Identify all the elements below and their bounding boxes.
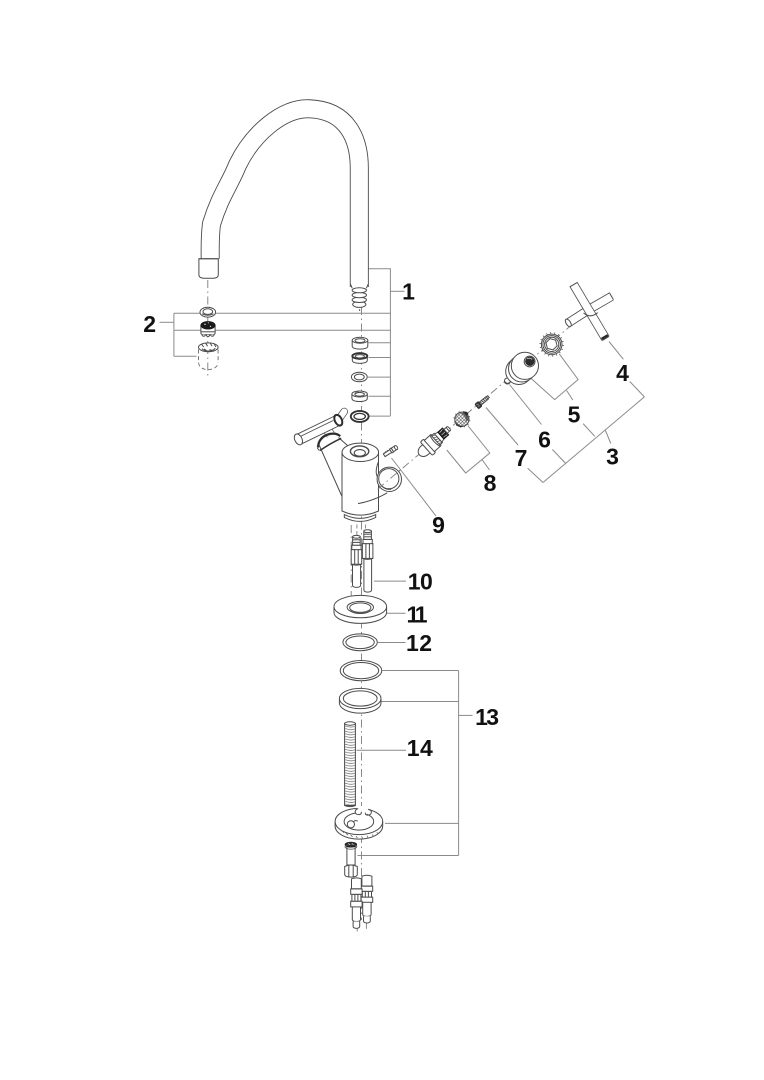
svg-text:5: 5: [568, 401, 581, 427]
svg-text:3: 3: [606, 443, 619, 469]
svg-text:14: 14: [407, 735, 433, 761]
svg-text:1: 1: [402, 279, 415, 305]
svg-text:9: 9: [432, 512, 445, 538]
svg-text:10: 10: [408, 568, 433, 594]
svg-text:7: 7: [515, 445, 528, 471]
svg-text:13: 13: [475, 704, 499, 730]
svg-text:4: 4: [616, 360, 629, 386]
svg-text:12: 12: [406, 630, 432, 656]
svg-text:2: 2: [143, 311, 156, 337]
svg-text:6: 6: [538, 426, 551, 452]
svg-text:11: 11: [407, 602, 428, 628]
svg-text:8: 8: [484, 470, 497, 496]
